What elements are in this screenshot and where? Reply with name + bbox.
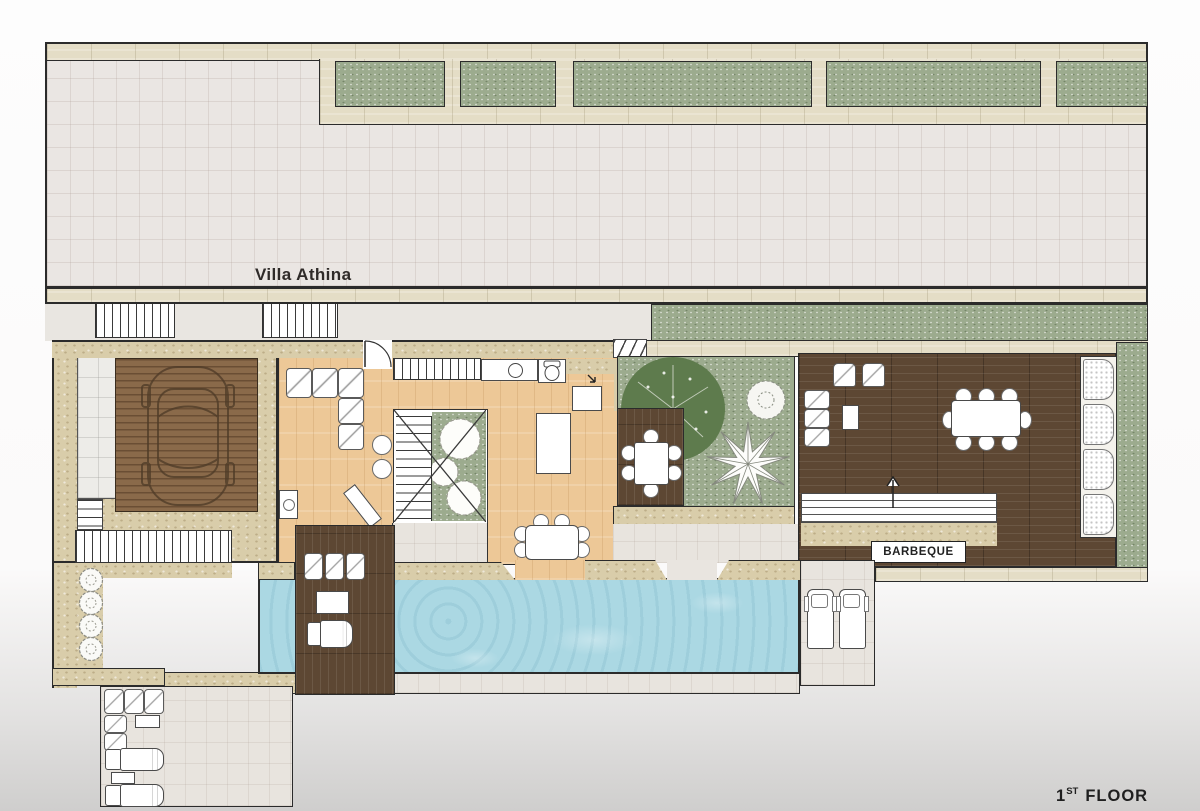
barbeque-label: BARBEQUE	[883, 546, 954, 558]
mid-terrace-strip	[613, 524, 800, 563]
deck-cushion	[325, 553, 344, 580]
dining-nook	[617, 408, 684, 506]
interior-wall-east	[566, 359, 619, 374]
side-chair	[804, 428, 830, 447]
mid-wall-band	[45, 288, 1148, 304]
nook-table	[634, 442, 669, 485]
north-wall-east	[392, 340, 618, 358]
upper-terrace	[45, 42, 1148, 288]
sofa-seat	[338, 398, 364, 424]
side-steps	[77, 499, 103, 530]
side-chair	[804, 390, 830, 409]
exterior-stairs-center	[262, 304, 338, 338]
pool-coping	[717, 560, 800, 580]
planter-band	[319, 59, 1146, 125]
outdoor-sofa-seat	[124, 689, 144, 714]
sink-icon	[508, 363, 523, 378]
appliance-unit	[279, 490, 298, 519]
void-south-strip	[392, 523, 488, 565]
entry-door	[363, 340, 392, 369]
sofa-seat	[312, 368, 338, 398]
villa-title: Villa Athina	[255, 265, 351, 285]
sun-lounger	[839, 589, 866, 649]
side-chair	[804, 409, 830, 428]
indoor-dining-table	[525, 525, 579, 560]
lounge-chair	[1083, 449, 1114, 490]
fridge-cabinet	[572, 386, 602, 411]
lawn-strip-east	[1116, 342, 1148, 568]
lounger-arm	[864, 596, 869, 612]
deck-cushion	[346, 553, 365, 580]
terrace-side-table	[111, 772, 135, 784]
exterior-stairs-west	[95, 304, 175, 338]
floor-number: 1	[1056, 787, 1066, 805]
side-table	[842, 405, 859, 430]
lounger-arm	[804, 596, 809, 612]
stair-void	[393, 409, 488, 524]
toilet-icon	[539, 360, 565, 382]
door-swing-icon	[363, 340, 392, 369]
kitchen-counter	[481, 359, 538, 381]
sofa-seat	[286, 368, 312, 398]
sofa-seat	[338, 368, 364, 398]
pool-deck-bridge	[295, 525, 395, 695]
planter-strip-4	[826, 61, 1041, 107]
pool-steps-gap	[667, 560, 717, 580]
deck-table	[316, 591, 349, 614]
planter-strip-1	[335, 61, 445, 107]
driveway-tiles	[77, 357, 117, 499]
courtyard-south-wall	[613, 506, 795, 525]
pouf-chair	[372, 459, 392, 479]
floor-label: 1STFLOOR	[1056, 786, 1148, 806]
terrace-lounger-body	[120, 784, 164, 807]
outdoor-sofa-seat	[104, 715, 127, 733]
coffee-table	[135, 715, 160, 728]
sofa-seat	[338, 424, 364, 450]
armchair	[833, 363, 856, 387]
car-icon	[116, 359, 259, 513]
sun-lounger	[807, 589, 834, 649]
south-west-stairs	[75, 530, 232, 563]
north-wall-west	[52, 340, 363, 358]
south-terrace	[100, 686, 293, 807]
pouf-chair	[372, 435, 392, 455]
deck-cushion	[304, 553, 323, 580]
floor-plan: BARBEQUE	[0, 0, 1200, 811]
pool-coping	[585, 560, 667, 580]
appliance-door-icon	[283, 499, 295, 511]
lawn-strip-upper	[651, 304, 1148, 341]
south-band-east	[875, 567, 1148, 582]
outdoor-sofa-seat	[104, 689, 124, 714]
hall-stairs-upper	[393, 358, 481, 380]
pool-coping	[395, 562, 515, 580]
pool-coping	[258, 562, 295, 580]
barbeque-arrow-icon	[885, 476, 901, 510]
floor-word: FLOOR	[1085, 787, 1148, 805]
armchair	[862, 363, 885, 387]
entry-arrow-icon	[586, 373, 598, 385]
planter-strip-3	[573, 61, 812, 107]
lounger-arm	[836, 596, 841, 612]
angled-bench	[343, 484, 382, 528]
pool-edge-wood	[515, 560, 585, 580]
stairs-band	[45, 304, 1148, 341]
kitchen-island	[536, 413, 571, 474]
outdoor-sofa-seat	[144, 689, 164, 714]
lounge-chair	[1083, 404, 1114, 445]
lounge-chair	[1083, 359, 1114, 400]
floor-ordinal: ST	[1066, 786, 1078, 797]
wc-nook	[538, 359, 566, 383]
south-wall-band	[52, 668, 165, 686]
outdoor-dining-room	[798, 353, 1116, 567]
garage-deck	[115, 358, 258, 512]
barbeque-label-box: BARBEQUE	[871, 541, 966, 563]
lounger-headrest	[811, 594, 828, 608]
lounger-headrest	[843, 594, 860, 608]
lounge-chair	[1083, 494, 1114, 535]
outdoor-dining-table	[951, 400, 1021, 437]
pool-east-terrace	[800, 560, 875, 686]
deck-lounger-body	[320, 620, 353, 648]
lounger-column	[1080, 356, 1117, 538]
void-cross-icon	[394, 410, 486, 522]
terrace-lounger-body	[120, 748, 164, 771]
planter-strip-5	[1056, 61, 1147, 107]
planter-strip-2	[460, 61, 556, 107]
